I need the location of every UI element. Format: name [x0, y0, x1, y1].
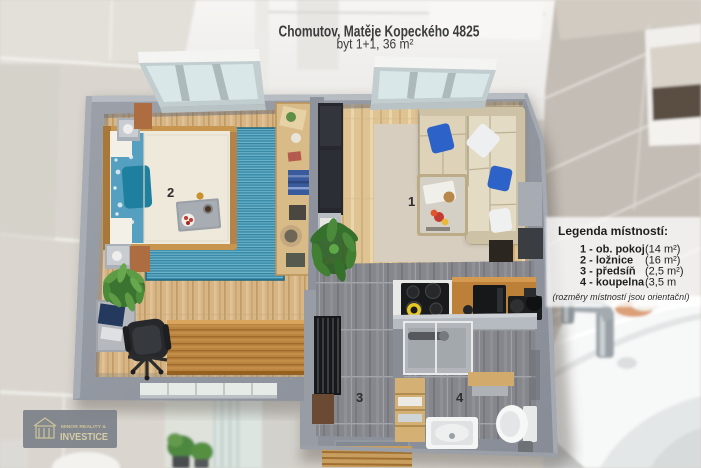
svg-text:Legenda místností:: Legenda místností: — [558, 224, 668, 238]
svg-text:(3,5 m: (3,5 m — [645, 277, 676, 289]
svg-text:4 - koupelna: 4 - koupelna — [580, 277, 645, 289]
svg-text:2: 2 — [167, 185, 174, 200]
svg-text:MINOR REALITY &: MINOR REALITY & — [61, 424, 107, 429]
svg-text:INVESTICE: INVESTICE — [60, 431, 108, 443]
svg-text:4: 4 — [456, 390, 464, 405]
svg-text:(rozměry místností jsou orient: (rozměry místností jsou orientační) — [553, 292, 690, 303]
svg-text:byt 1+1, 36 m²: byt 1+1, 36 m² — [337, 36, 414, 52]
svg-text:1: 1 — [408, 194, 415, 209]
svg-text:3: 3 — [356, 390, 363, 405]
